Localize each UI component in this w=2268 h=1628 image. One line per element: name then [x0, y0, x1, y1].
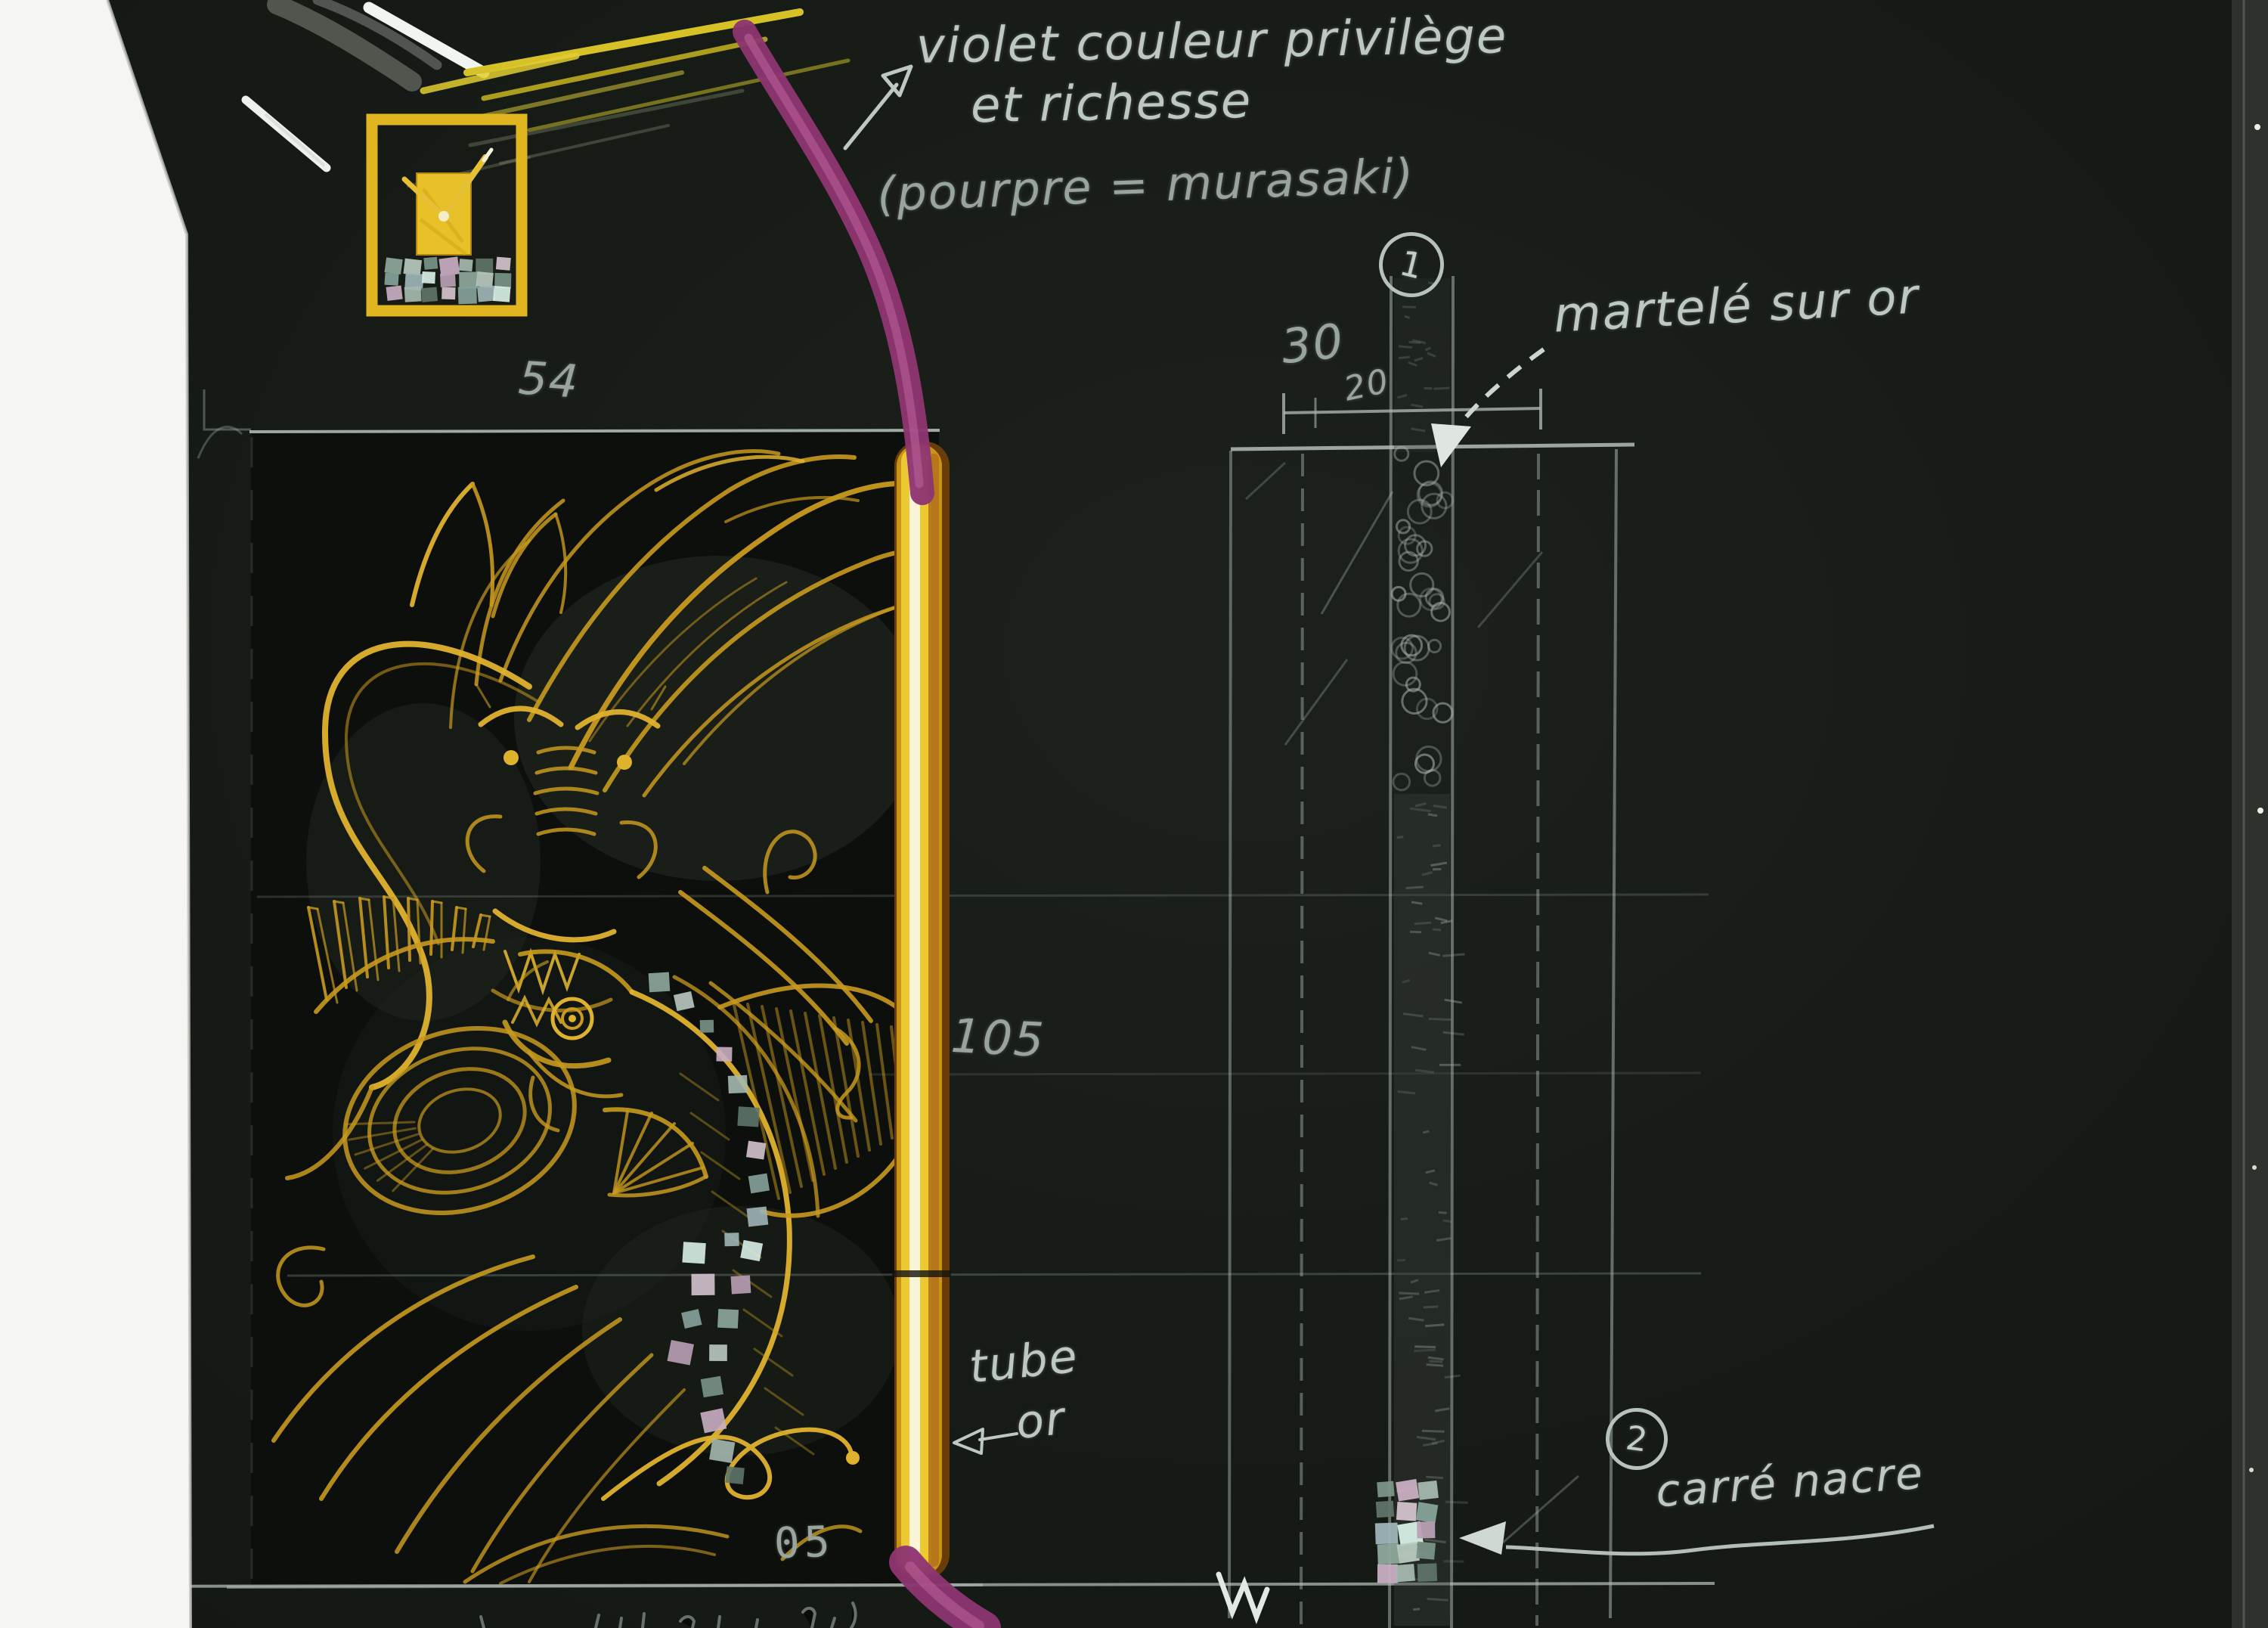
hammered-band-right: [1452, 276, 1453, 1628]
gold-tube: [892, 442, 951, 1579]
watch-clasp-study: [372, 119, 522, 311]
elevation-inner-line-1: [1301, 454, 1303, 1626]
tube-highlight: [909, 454, 920, 1568]
scan-edge-right: [2232, 0, 2268, 1628]
annotation-violet-line2: et richesse: [970, 73, 1252, 134]
callout-1-number: 1: [1396, 242, 1427, 287]
elevation-inner-line-2: [1537, 454, 1538, 1626]
technical-elevation: [1229, 276, 1634, 1628]
guide-line-mid2: [869, 1073, 1701, 1074]
carre-nacre-arrowhead: [1459, 1521, 1506, 1555]
watch-hand-pivot: [438, 211, 449, 222]
dimension-30: 30: [1278, 313, 1346, 374]
dimension-105: 105: [950, 1008, 1046, 1068]
nacre-mosaic-frame: [384, 256, 511, 304]
elevation-left-edge: [1229, 451, 1231, 1618]
carre-nacre-arrow: [1459, 1521, 1934, 1555]
decorative-brush-strokes: [246, 0, 848, 186]
card-top-edge: [249, 430, 940, 432]
lacquer-card-panel: [251, 433, 939, 1586]
tube-arrow: [954, 1429, 1017, 1453]
zigzag-mark: [1219, 1574, 1267, 1617]
scan-margin-left: [0, 0, 191, 1628]
cutoff-handwriting: [481, 1603, 856, 1628]
dimension-05: 05: [773, 1518, 835, 1569]
sketch-artwork: [0, 0, 2268, 1628]
annotation-or: or: [1014, 1392, 1068, 1450]
dimension-54: 54: [517, 352, 581, 408]
annotation-violet-line1: violet couleur privilège: [916, 8, 1507, 75]
violet-arrow: [845, 67, 911, 148]
callout-2-number: 2: [1624, 1419, 1650, 1459]
nacre-mosaic-band: [1375, 1479, 1439, 1583]
hammered-band-left: [1390, 276, 1391, 1628]
corner-bracket: [204, 389, 251, 429]
margin-scribble: [198, 427, 242, 458]
scanned-design-sketch: violet couleur privilège et richesse (po…: [0, 0, 2268, 1628]
